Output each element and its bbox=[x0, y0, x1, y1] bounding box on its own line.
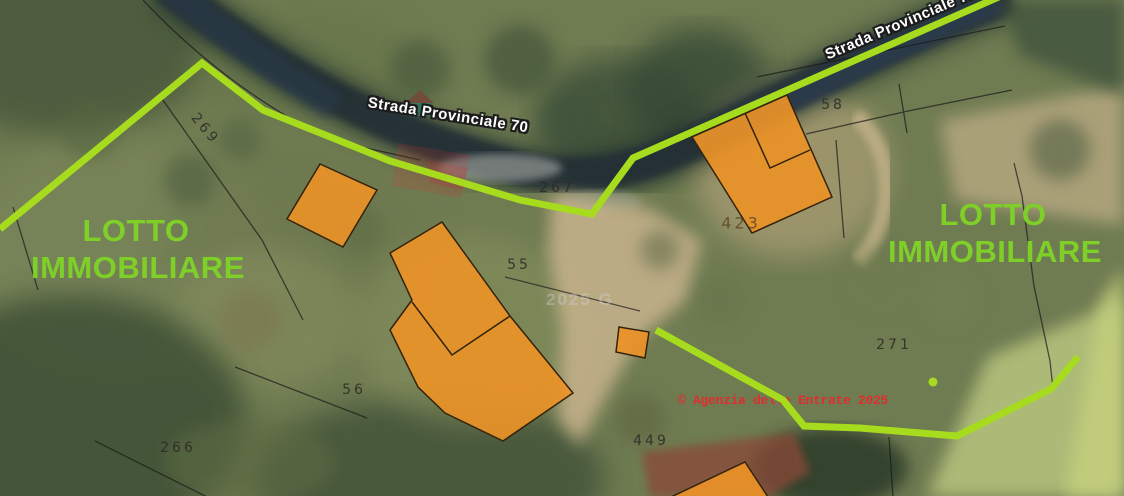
aerial-photo-background bbox=[0, 0, 1124, 496]
cadastral-aerial-map[interactable]: © Agenzia delle Entrate 2025 Strada Prov… bbox=[0, 0, 1124, 496]
aerial-map-canvas[interactable]: © Agenzia delle Entrate 2025 bbox=[0, 0, 1124, 496]
boundary-vertex-dot bbox=[929, 378, 938, 387]
building-small-center bbox=[616, 327, 649, 358]
